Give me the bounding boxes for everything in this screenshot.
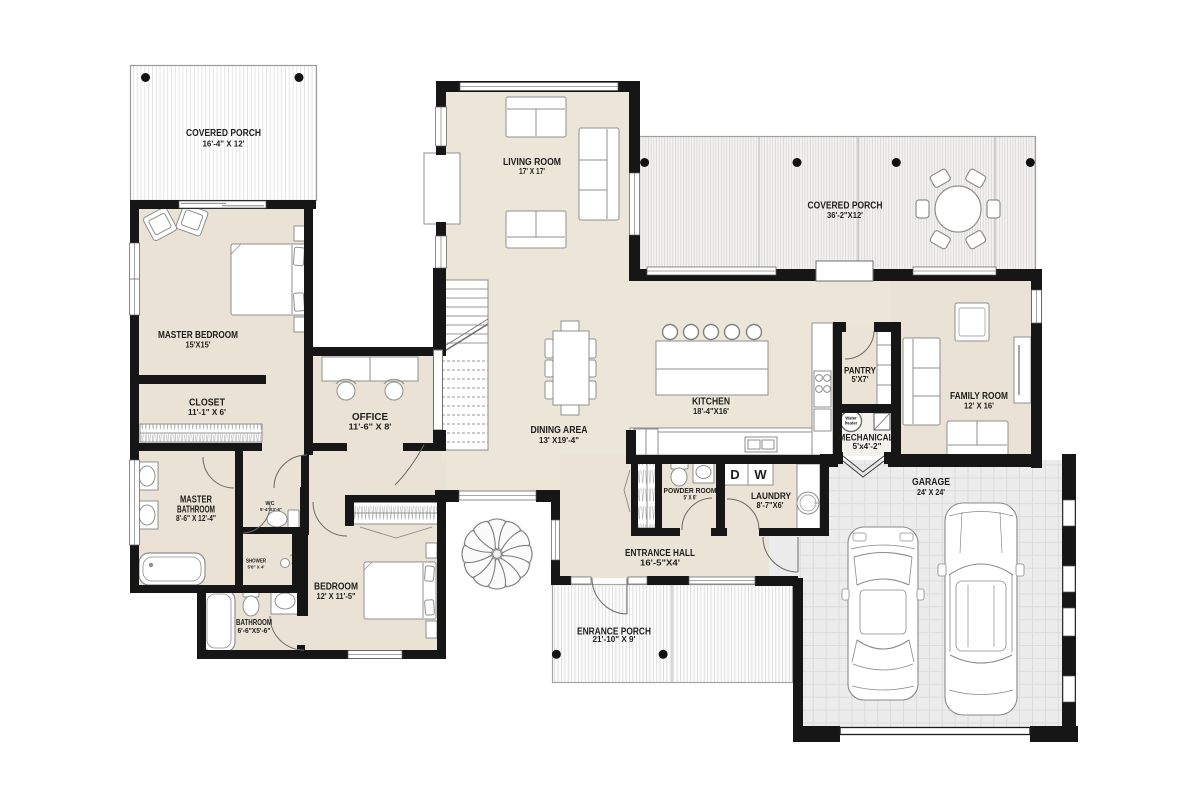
svg-text:5'-4"X3'-6": 5'-4"X3'-6" — [260, 507, 282, 513]
svg-text:11'-6" X 8': 11'-6" X 8' — [349, 423, 392, 432]
svg-text:36'-2"X12': 36'-2"X12' — [827, 210, 863, 220]
svg-text:heater: heater — [845, 421, 858, 426]
svg-text:24' X 24': 24' X 24' — [917, 487, 945, 497]
svg-text:13' X19'-4": 13' X19'-4" — [539, 435, 579, 445]
svg-text:6'-6"X5'-6": 6'-6"X5'-6" — [238, 628, 271, 635]
svg-text:16'-4" X 12': 16'-4" X 12' — [203, 139, 245, 149]
svg-text:CLOSET: CLOSET — [189, 398, 225, 409]
svg-text:5'X7': 5'X7' — [852, 375, 869, 384]
svg-text:11'-1" X 6': 11'-1" X 6' — [188, 408, 226, 417]
svg-text:12' X 16': 12' X 16' — [964, 401, 994, 411]
svg-text:W: W — [754, 467, 767, 482]
svg-text:8'-7"X6': 8'-7"X6' — [757, 501, 784, 510]
svg-text:21'-10" X 9': 21'-10" X 9' — [593, 634, 636, 644]
svg-text:18'-4"X16': 18'-4"X16' — [693, 406, 729, 416]
svg-text:BATHROOM: BATHROOM — [236, 617, 272, 627]
svg-text:8'-6" X 12'-4": 8'-6" X 12'-4" — [176, 514, 216, 523]
svg-text:15'X15': 15'X15' — [186, 340, 211, 350]
svg-text:12' X 11'-5": 12' X 11'-5" — [317, 591, 356, 601]
svg-text:16'-5"X4': 16'-5"X4' — [640, 558, 680, 568]
svg-text:17' X 17': 17' X 17' — [519, 166, 545, 176]
svg-text:COVERED PORCH: COVERED PORCH — [186, 128, 261, 139]
svg-text:5' X 6': 5' X 6' — [684, 496, 697, 502]
svg-text:SHOWER: SHOWER — [246, 559, 266, 565]
svg-text:POWDER ROOM: POWDER ROOM — [664, 488, 717, 495]
svg-text:WC: WC — [265, 501, 274, 507]
svg-text:OFFICE: OFFICE — [352, 412, 388, 423]
svg-text:D: D — [730, 467, 739, 482]
svg-text:5'6" X 4': 5'6" X 4' — [248, 565, 265, 571]
svg-text:5'x4'-2": 5'x4'-2" — [853, 442, 882, 451]
